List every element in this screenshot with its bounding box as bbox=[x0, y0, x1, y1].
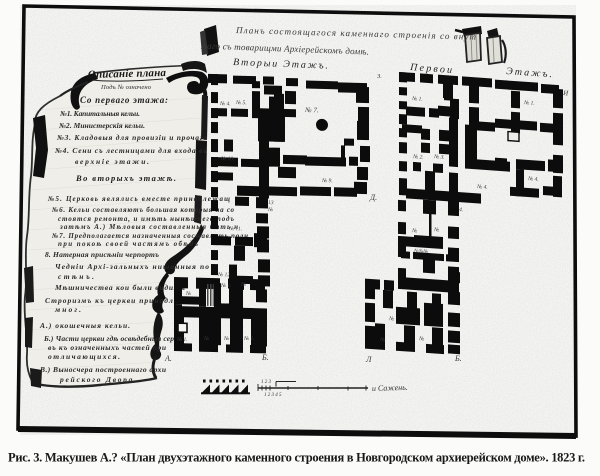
svg-text:Д.: Д. bbox=[369, 193, 377, 202]
svg-text:стоятся ремонта, и имѣть нынѣш: стоятся ремонта, и имѣть нынѣшнего подъ bbox=[58, 215, 234, 223]
svg-text:№4. Сени съ лестницами для вхо: №4. Сени съ лестницами для входа въ bbox=[54, 146, 207, 155]
svg-text:№ 5.: № 5. bbox=[235, 100, 247, 106]
svg-text:стѣнъ.: стѣнъ. bbox=[58, 272, 94, 281]
svg-text:Подъ № означено: Подъ № означено bbox=[100, 84, 152, 91]
svg-text:Л: Л bbox=[365, 355, 372, 364]
svg-text:Б.: Б. bbox=[454, 354, 462, 363]
svg-text:№ 1.: № 1. bbox=[243, 336, 255, 342]
svg-text:№ 1.: № 1. bbox=[220, 283, 232, 289]
svg-text:№ 10.: № 10. bbox=[220, 156, 235, 162]
svg-text:№2. Министерскія кельи.: №2. Министерскія кельи. bbox=[58, 121, 145, 130]
svg-text:№ 12.: № 12. bbox=[217, 272, 232, 278]
svg-text:№ 9.: № 9. bbox=[321, 178, 333, 184]
svg-text:верхніе этажи.: верхніе этажи. bbox=[75, 157, 149, 166]
svg-text:8. Натерная присѣніи черпортъ: 8. Натерная присѣніи черпортъ bbox=[45, 250, 159, 259]
svg-text:№ 1.: № 1. bbox=[411, 96, 423, 103]
svg-text:№5. Церковь являлись вместе пр: №5. Церковь являлись вместе принадлежащ bbox=[47, 195, 230, 203]
svg-text:№: № bbox=[203, 336, 209, 342]
svg-text:Б.: Б. bbox=[261, 353, 269, 362]
svg-text:№: № bbox=[418, 336, 425, 342]
svg-text:№: № bbox=[267, 207, 273, 213]
svg-text:№ 4.: № 4. bbox=[527, 175, 539, 183]
svg-text:№: № bbox=[223, 336, 229, 342]
svg-text:А.: А. bbox=[164, 354, 172, 363]
svg-text:№ 4.: № 4. bbox=[476, 183, 488, 191]
svg-text:№ 11.: № 11. bbox=[228, 226, 242, 232]
svg-text:рейского Двора.: рейского Двора. bbox=[59, 375, 136, 384]
svg-text:З.: З. bbox=[377, 73, 382, 80]
svg-text:1 2 3 4 5: 1 2 3 4 5 bbox=[264, 393, 282, 398]
svg-text:Описаніе плана: Описаніе плана bbox=[88, 67, 167, 81]
svg-text:4.: 4. bbox=[459, 206, 464, 213]
svg-text:Б.) Части церкви гдѣ освѣдебны: Б.) Части церкви гдѣ освѣдебныя сер bbox=[43, 334, 174, 343]
svg-text:13: 13 bbox=[268, 200, 274, 206]
svg-text:Чедніи Архі-зальныхъ нишанныя: Чедніи Архі-зальныхъ нишанныя по bbox=[55, 262, 209, 271]
svg-text:В.) Выносчера построеннаго арх: В.) Выносчера построеннаго архи bbox=[39, 365, 166, 374]
svg-text:№ 7.: № 7. bbox=[304, 106, 319, 114]
svg-text:Мѣшничества кои были видимы: Мѣшничества кои были видимы bbox=[54, 283, 185, 292]
svg-text:отличающихся.: отличающихся. bbox=[48, 352, 120, 361]
svg-text:№: № bbox=[240, 282, 246, 288]
svg-text:1 2 3: 1 2 3 bbox=[261, 380, 272, 385]
svg-text:№ 2.: № 2. bbox=[412, 154, 424, 161]
svg-text:№ 1.: № 1. bbox=[523, 100, 535, 107]
svg-text:№: № bbox=[388, 316, 395, 322]
svg-text:№№№: №№№ bbox=[413, 248, 429, 255]
svg-text:и Сажень.: и Сажень. bbox=[372, 383, 408, 393]
svg-text:Рис. 3. Макушев А.? «План двух: Рис. 3. Макушев А.? «План двухэтажного к… bbox=[8, 451, 585, 465]
svg-text:№ 1.: № 1. bbox=[176, 337, 188, 343]
svg-text:№ 4.: № 4. bbox=[219, 100, 231, 107]
svg-text:А.) окошечныя кельи.: А.) окошечныя кельи. bbox=[39, 321, 130, 330]
svg-text:№: № bbox=[379, 337, 386, 343]
svg-text:№: № bbox=[433, 227, 440, 233]
svg-text:№6. Кельи составляютъ большая: №6. Кельи составляютъ большая которыя на… bbox=[51, 206, 234, 214]
svg-text:Во вторыхъ этажѣ.: Во вторыхъ этажѣ. bbox=[75, 173, 176, 183]
svg-text:Со перваго этажа:: Со перваго этажа: bbox=[80, 95, 168, 105]
svg-text:№ 3.: № 3. bbox=[433, 154, 445, 161]
svg-text:№1. Капитальныя кельи.: №1. Капитальныя кельи. bbox=[59, 109, 140, 118]
svg-text:№: № bbox=[185, 291, 191, 297]
svg-text:№: № bbox=[411, 228, 418, 234]
svg-text:№3. Кладовыя для провизіи и пр: №3. Кладовыя для провизіи и прочаго bbox=[56, 133, 207, 142]
svg-text:въ къ означенныхъ частей при: въ къ означенныхъ частей при bbox=[48, 343, 166, 352]
